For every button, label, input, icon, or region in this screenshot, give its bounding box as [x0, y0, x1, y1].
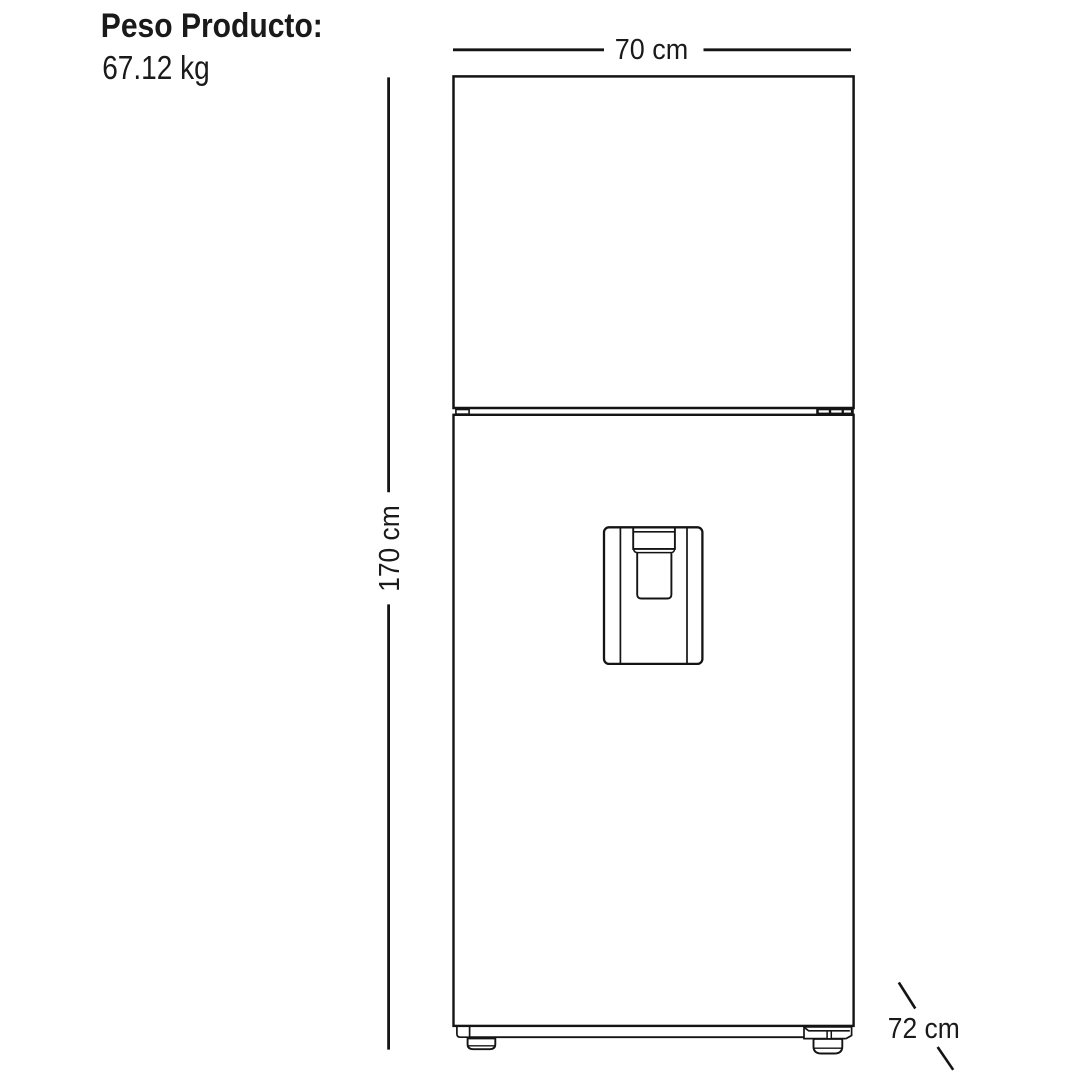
svg-text:72 cm: 72 cm: [888, 1013, 960, 1045]
svg-text:67.12 kg: 67.12 kg: [102, 50, 210, 87]
svg-text:70 cm: 70 cm: [615, 34, 689, 66]
svg-text:170 cm: 170 cm: [374, 505, 406, 592]
svg-text:Peso Producto:: Peso Producto:: [101, 7, 323, 45]
